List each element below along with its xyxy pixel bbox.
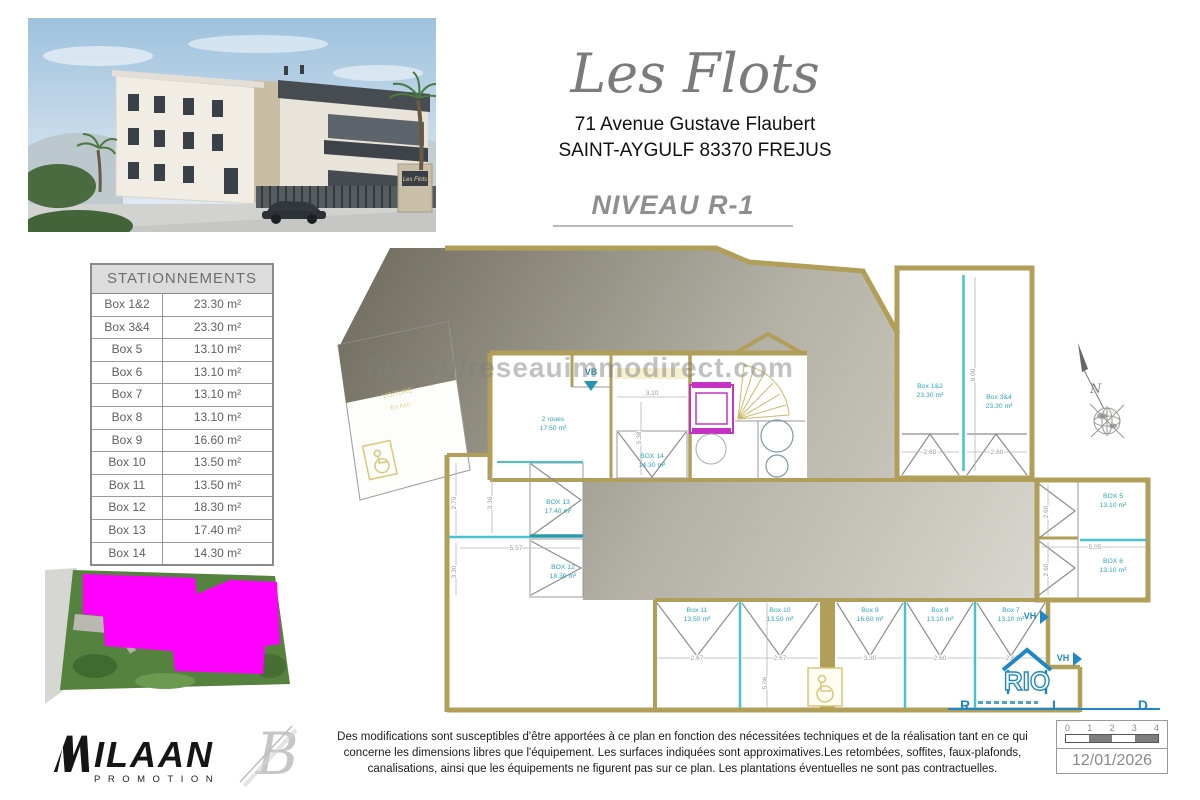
promoter-name: ILAAN (94, 738, 214, 772)
milaan-m-icon (52, 732, 94, 772)
row-label: Box 12 (92, 497, 163, 519)
room-box12-area: 18.30 m² (550, 573, 578, 580)
page-title: Les Flots (490, 42, 900, 105)
row-area: 16.60 m² (163, 430, 272, 452)
scale-tick-2: 2 (1109, 723, 1114, 733)
scale-bar (1065, 734, 1159, 743)
dim-270: 2.70 (451, 496, 458, 509)
room-box3-4-name: Box 3&4 (986, 394, 1012, 401)
scale-tick-4: 4 (1154, 723, 1159, 733)
dim-538: 5.38 (636, 431, 643, 444)
architect-logo: B (234, 712, 304, 792)
row-label: Box 7 (92, 384, 163, 406)
dim-267a: 2.67 (691, 655, 704, 662)
dim-330b: 3.30 (864, 655, 877, 662)
row-area: 13.10 m² (163, 384, 272, 406)
row-label: Box 8 (92, 407, 163, 429)
room-box7-name: Box 7 (1002, 607, 1020, 614)
room-2roues-area: 17.50 m² (540, 425, 568, 432)
table-row: Box 813.10 m² (92, 407, 272, 430)
dim-267b: 2.67 (774, 655, 787, 662)
table-row: Box 613.10 m² (92, 362, 272, 385)
room-box7-area: 13.10 m² (998, 616, 1026, 623)
entrance-sign: Les Flots (398, 164, 432, 212)
parking-ramp: VOITURE En Acc (338, 322, 470, 500)
table-row: Box 1317.40 m² (92, 520, 272, 543)
scale-tick-3: 3 (1132, 723, 1137, 733)
disclaimer-line-2: concerne les dimensions libres que l'équ… (325, 745, 1040, 761)
table-row: Box 513.10 m² (92, 339, 272, 362)
table-row: Box 916.60 m² (92, 430, 272, 453)
row-area: 13.10 m² (163, 407, 272, 429)
dim-900: 9.00 (970, 368, 977, 381)
scale-box: 0 1 2 3 4 12/01/2026 (1056, 720, 1168, 774)
vh-triangle-icon-2 (1073, 652, 1082, 666)
dim-310: 3.10 (646, 390, 659, 397)
dim-557: 5.57 (510, 545, 523, 552)
level-title: NIVEAU R-1 (553, 190, 793, 227)
page: Les Flots Les Flots 71 Avenue Gustave Fl… (0, 0, 1200, 800)
row-area: 13.50 m² (163, 452, 272, 474)
row-area: 13.10 m² (163, 339, 272, 361)
table-row: Box 1&223.30 m² (92, 294, 272, 317)
rid-letter-i: I (1052, 697, 1056, 713)
row-label: Box 9 (92, 430, 163, 452)
table-row: Box 1218.30 m² (92, 497, 272, 520)
room-box13-area: 17.40 m² (545, 508, 573, 515)
watermark: https://reseauimmodirect.com (366, 352, 794, 384)
table-row: Box 3&423.30 m² (92, 317, 272, 340)
photo-sign-text: Les Flots (403, 177, 427, 183)
room-box9-area: 16.60 m² (857, 616, 885, 623)
row-area: 13.10 m² (163, 362, 272, 384)
room-box11-area: 13.50 m² (684, 616, 712, 623)
room-box8-name: Box 8 (931, 607, 949, 614)
row-label: Box 3&4 (92, 317, 163, 339)
room-box1-2-name: Box 1&2 (917, 383, 943, 390)
north-label: N (1089, 382, 1102, 397)
row-label: Box 10 (92, 452, 163, 474)
row-label: Box 11 (92, 475, 163, 497)
scale-ticks: 0 1 2 3 4 (1057, 721, 1167, 733)
row-label: Box 6 (92, 362, 163, 384)
room-box11-name: Box 11 (687, 607, 708, 614)
vh-label-1: VH (1024, 611, 1037, 621)
table-row: Box 1013.50 m² (92, 452, 272, 475)
room-box10-name: Box 10 (769, 607, 790, 614)
row-label: Box 1&2 (92, 294, 163, 316)
room-box3-4-area: 23.30 m² (986, 403, 1014, 410)
dim-260e: 2.60 (1043, 563, 1050, 576)
row-label: Box 13 (92, 520, 163, 542)
row-area: 13.50 m² (163, 475, 272, 497)
elevator (690, 382, 733, 434)
room-box5-area: 13.10 m² (1100, 502, 1128, 509)
address-line2: SAINT-AYGULF 83370 FREJUS (470, 140, 920, 162)
room-box14-name: BOX 14 (640, 453, 664, 460)
room-box14-area: 14.30 m² (639, 462, 667, 469)
wheelchair-icon-2 (808, 668, 842, 706)
rid-watermark: R I D (948, 697, 1160, 710)
row-label: Box 5 (92, 339, 163, 361)
parking-table: STATIONNEMENTS Box 1&223.30 m²Box 3&423.… (90, 263, 274, 566)
dim-505: 5.05 (1089, 544, 1102, 551)
room-2roues-name: 2 roues (542, 416, 565, 423)
row-area: 23.30 m² (163, 294, 272, 316)
dim-330a: 3.30 (451, 565, 458, 578)
svg-text:B: B (255, 720, 299, 788)
room-box1-2-area: 23.30 m² (917, 392, 945, 399)
promoter-logo: ILAAN PROMOTION (52, 732, 242, 785)
dim-260a: 2.60 (924, 449, 937, 456)
room-box6-name: BOX 6 (1103, 558, 1123, 565)
dim-336: 3.36 (487, 496, 494, 509)
rio-text: RIO (1004, 666, 1050, 696)
row-area: 18.30 m² (163, 497, 272, 519)
site-plan (45, 556, 295, 722)
table-row: Box 1113.50 m² (92, 475, 272, 498)
parking-table-title: STATIONNEMENTS (92, 265, 272, 294)
scale-tick-1: 1 (1087, 723, 1092, 733)
dim-260b: 2.60 (991, 449, 1004, 456)
north-compass-icon: N (1078, 343, 1124, 438)
room-box5-name: BOX 5 (1103, 493, 1123, 500)
row-area: 23.30 m² (163, 317, 272, 339)
dim-506: 5.06 (762, 676, 769, 689)
table-row: Box 713.10 m² (92, 384, 272, 407)
rio-house-logo: RIO (995, 640, 1059, 702)
plan-date: 12/01/2026 (1057, 748, 1167, 773)
parking-table-rows: Box 1&223.30 m²Box 3&423.30 m²Box 513.10… (92, 294, 272, 564)
dim-260d: 2.60 (1043, 505, 1050, 518)
building-photo: Les Flots (28, 18, 436, 232)
room-box6-area: 13.10 m² (1100, 567, 1128, 574)
room-box13-name: BOX 13 (546, 499, 570, 506)
room-box8-area: 13.10 m² (927, 616, 955, 623)
promoter-subtitle: PROMOTION (94, 774, 242, 785)
rid-smalltext-decor (978, 701, 1038, 704)
row-area: 17.40 m² (163, 520, 272, 542)
address-line1: 71 Avenue Gustave Flaubert (470, 114, 920, 136)
room-box9-name: Box 9 (861, 607, 879, 614)
room-box12-name: BOX 12 (551, 564, 575, 571)
scale-tick-0: 0 (1065, 723, 1070, 733)
disclaimer-line-1: Des modifications sont susceptibles d'êt… (325, 729, 1040, 745)
room-box10-area: 13.50 m² (767, 616, 795, 623)
disclaimer: Des modifications sont susceptibles d'êt… (325, 729, 1040, 777)
dim-260c: 2.60 (934, 655, 947, 662)
rid-letter-d: D (1138, 697, 1148, 713)
disclaimer-line-3: canalisations, ainsi que les équipements… (325, 761, 1040, 777)
rid-letter-r: R (960, 697, 970, 713)
